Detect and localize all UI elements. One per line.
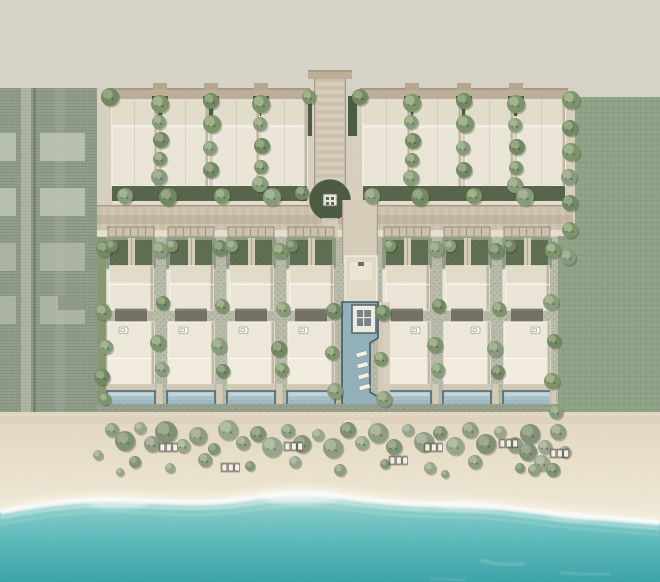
- grain-overlay: [0, 0, 660, 582]
- site-plan-canvas: [0, 0, 660, 582]
- site-plan-rendering: [0, 0, 660, 582]
